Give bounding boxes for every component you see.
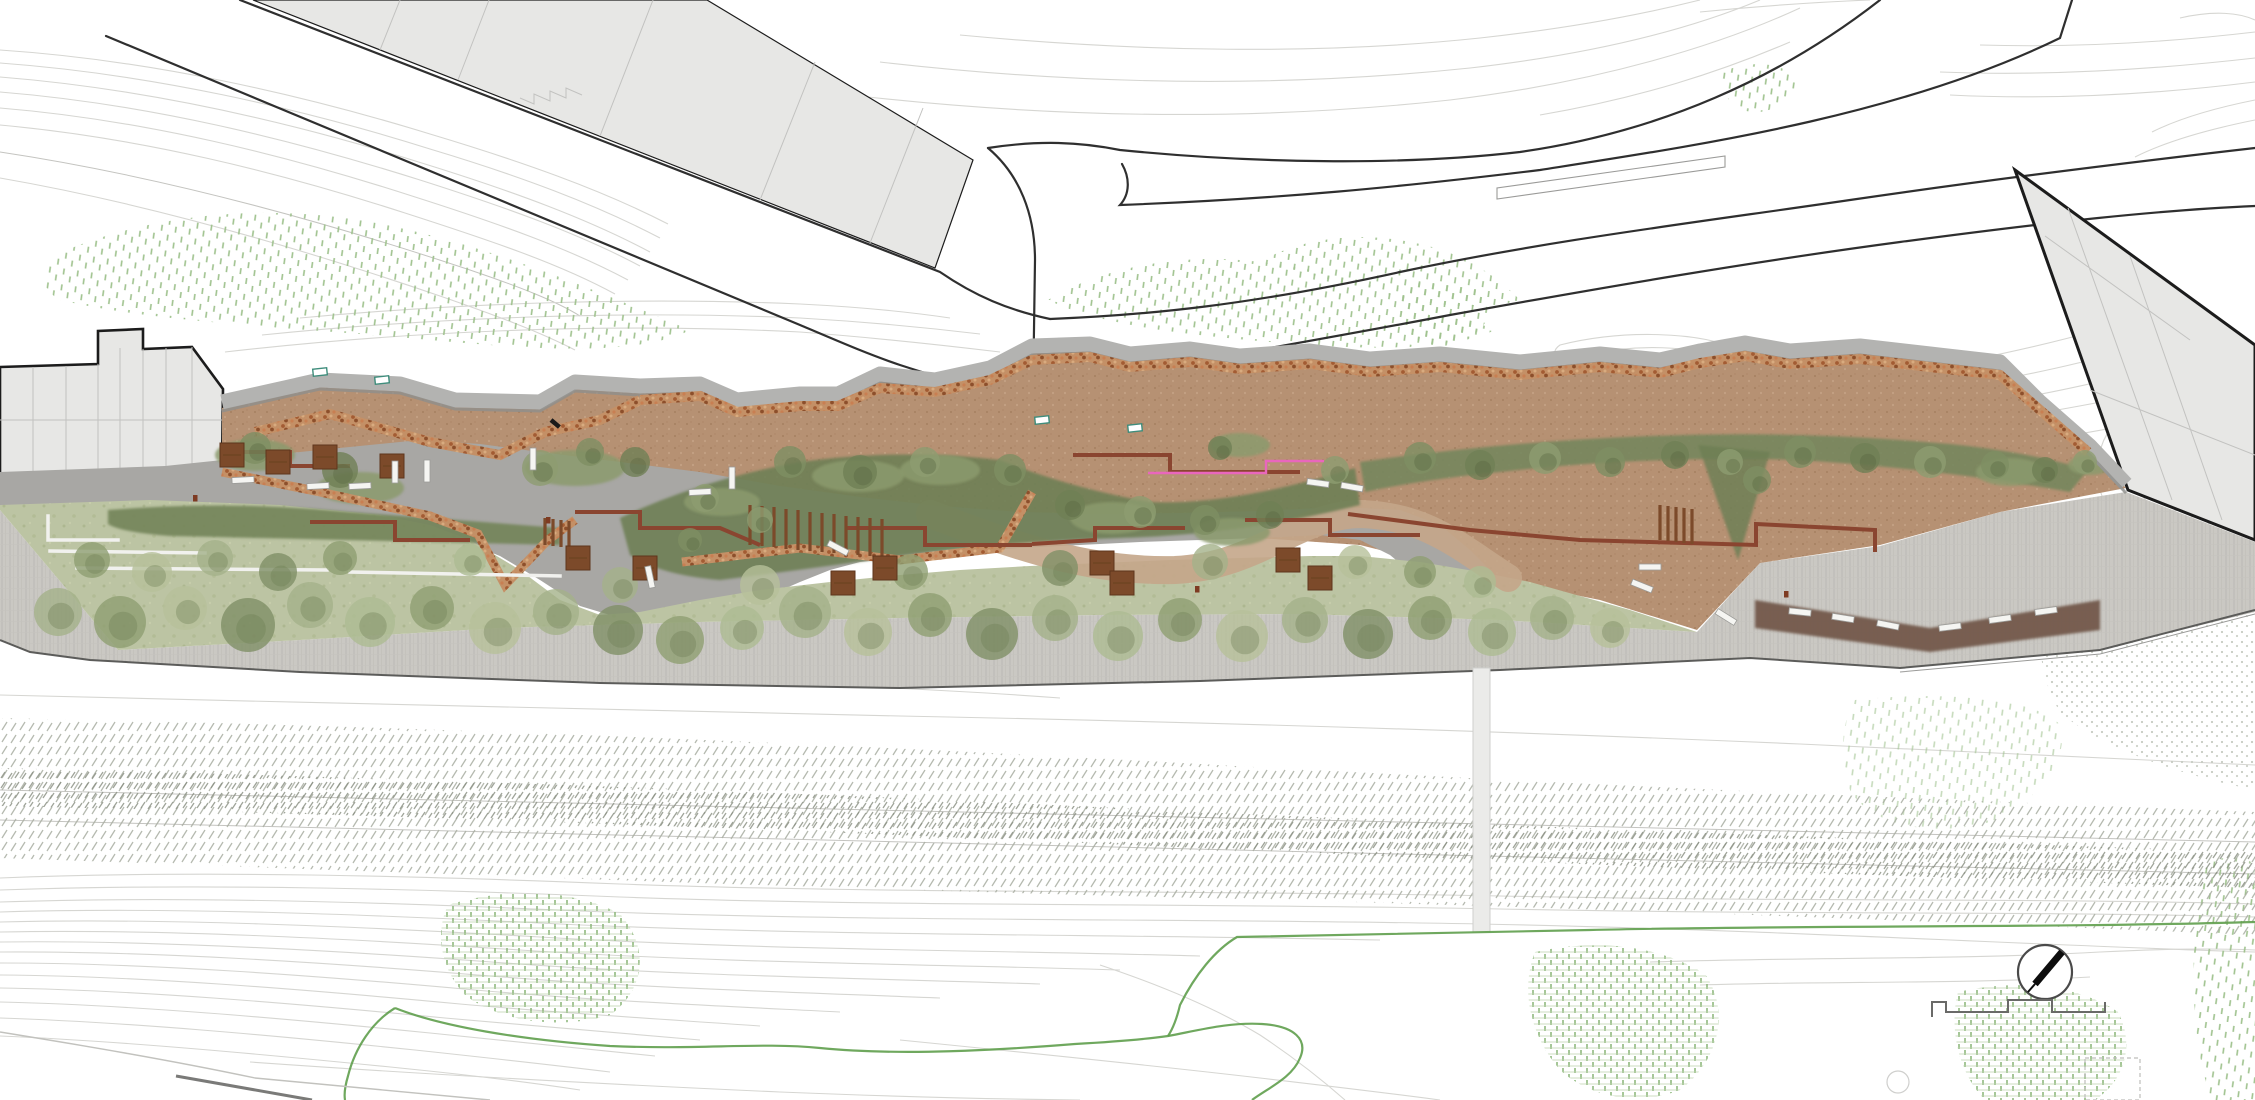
contour-lines-topmid <box>850 0 2255 115</box>
tree <box>1321 456 1349 484</box>
bench <box>729 467 735 489</box>
tree <box>576 438 604 466</box>
tree <box>197 540 233 576</box>
tree <box>533 589 579 635</box>
tree <box>323 541 357 575</box>
tree <box>454 544 486 576</box>
wood-deck-seat <box>831 571 855 595</box>
tree <box>469 602 521 654</box>
tree <box>410 586 454 630</box>
tree <box>1093 611 1143 661</box>
footbridge <box>1473 668 1490 932</box>
tree <box>1256 501 1284 529</box>
north-arrow-compass <box>2018 945 2072 999</box>
tree <box>1590 608 1630 648</box>
building-left-block <box>0 329 223 477</box>
tree <box>1282 597 1328 643</box>
tree <box>844 608 892 656</box>
tree <box>522 450 558 486</box>
wood-deck-seat <box>1276 548 1300 572</box>
tree <box>1208 436 1232 460</box>
bench <box>424 460 430 482</box>
teal-marker <box>313 368 328 376</box>
tree <box>740 565 780 605</box>
wood-deck-seat <box>873 556 897 580</box>
tree <box>1158 598 1202 642</box>
tree <box>843 455 877 489</box>
tree <box>1530 596 1574 640</box>
tree <box>287 582 333 628</box>
teal-marker <box>375 376 390 384</box>
bench <box>530 448 536 470</box>
tree <box>1032 595 1078 641</box>
small-circle-mark <box>1887 1071 1909 1093</box>
bench <box>232 476 254 483</box>
tree <box>1743 466 1771 494</box>
tree <box>678 528 702 552</box>
tree <box>1343 609 1393 659</box>
bench <box>392 461 398 483</box>
tree <box>1784 436 1816 468</box>
tree <box>132 552 172 592</box>
tree <box>966 608 1018 660</box>
tree <box>1216 610 1268 662</box>
tree <box>1404 556 1436 588</box>
tree <box>620 447 650 477</box>
site-plan-canvas <box>0 0 2255 1100</box>
tree <box>1850 443 1880 473</box>
tree <box>1914 446 1946 478</box>
tree <box>94 596 146 648</box>
light-post-dot <box>546 517 551 524</box>
tree <box>593 605 643 655</box>
tree <box>1338 545 1372 579</box>
wood-deck-seat <box>220 443 244 467</box>
teal-marker <box>1035 416 1050 424</box>
tree <box>1464 566 1496 598</box>
tree <box>74 542 110 578</box>
tree <box>779 586 831 638</box>
wood-deck-seat <box>313 445 337 469</box>
light-post-dot <box>1195 586 1200 593</box>
wood-deck-seat <box>1110 571 1134 595</box>
tree <box>1465 450 1495 480</box>
teal-marker <box>1128 424 1143 432</box>
tree <box>221 598 275 652</box>
tree <box>163 586 207 630</box>
tree <box>720 606 764 650</box>
tree <box>1055 490 1085 520</box>
tree <box>910 447 940 477</box>
tree <box>908 593 952 637</box>
tree <box>1468 608 1516 656</box>
tree <box>747 507 773 533</box>
tree <box>656 616 704 664</box>
tree <box>2073 450 2097 474</box>
tree <box>259 553 297 591</box>
tree <box>1529 442 1561 474</box>
site-plan-drawing <box>0 0 2255 1100</box>
tree <box>774 446 806 478</box>
bench <box>307 482 329 489</box>
light-post-dot <box>1784 591 1789 598</box>
tree <box>1981 451 2009 479</box>
tree <box>1124 496 1156 528</box>
light-post-dot <box>193 495 198 502</box>
tree <box>1408 596 1452 640</box>
wood-deck-seat <box>566 546 590 570</box>
tree <box>1192 544 1228 580</box>
tree <box>994 454 1026 486</box>
bottom-left-paths <box>0 1032 490 1100</box>
wood-deck-seat <box>1308 566 1332 590</box>
tree <box>345 597 395 647</box>
tree <box>691 484 719 512</box>
wood-deck-seat <box>266 450 290 474</box>
tree <box>1661 441 1689 469</box>
tree <box>34 588 82 636</box>
bench <box>349 482 371 489</box>
tree <box>1595 447 1625 477</box>
tree <box>1717 449 1743 475</box>
tree <box>1190 505 1220 535</box>
bench <box>1639 564 1661 570</box>
bench <box>689 488 711 495</box>
tree <box>1042 550 1078 586</box>
tree <box>1404 442 1436 474</box>
tree <box>2032 457 2058 483</box>
